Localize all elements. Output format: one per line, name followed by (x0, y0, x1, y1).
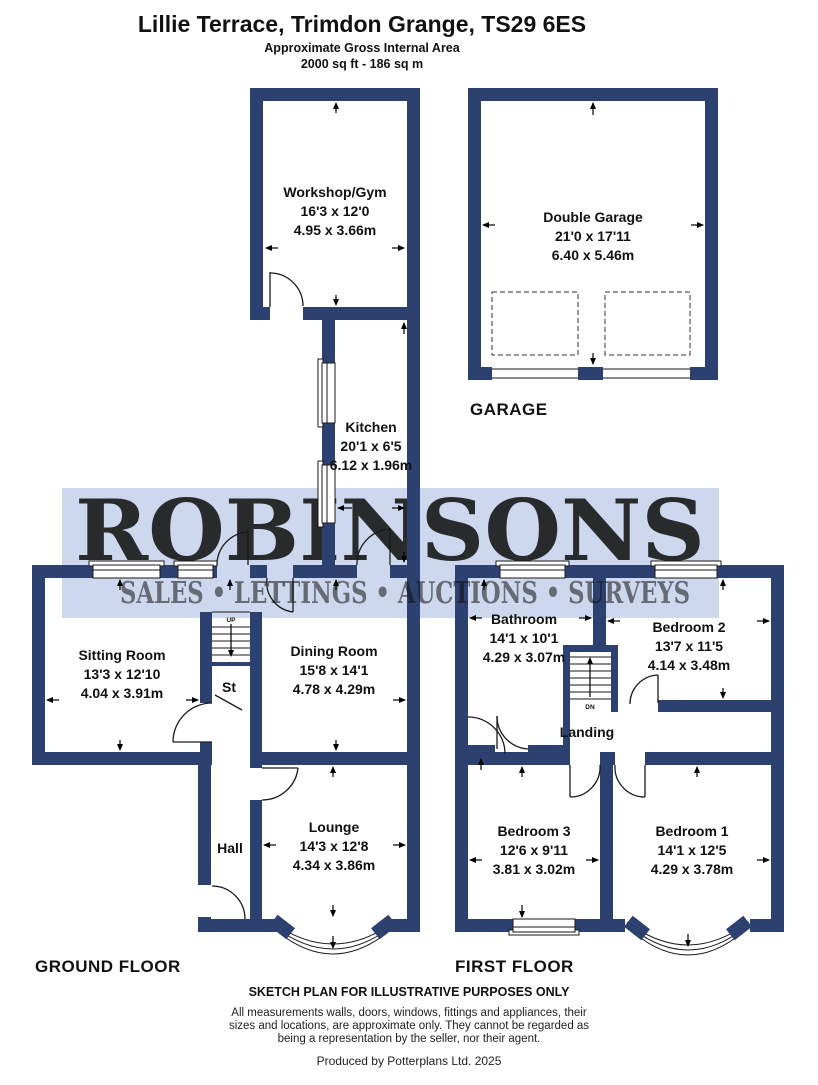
room-metric: 4.34 x 3.86m (293, 857, 376, 873)
door-arc-icon (630, 675, 658, 704)
area-label: Approximate Gross Internal Area (264, 41, 460, 55)
room-bedroom3-label: Bedroom 3 12'6 x 9'11 3.81 x 3.02m (493, 823, 576, 877)
room-st-label: St (222, 679, 236, 695)
room-metric: 3.81 x 3.02m (493, 861, 576, 877)
disclaimer-title: SKETCH PLAN FOR ILLUSTRATIVE PURPOSES ON… (249, 985, 571, 999)
room-imperial: 12'6 x 9'11 (500, 842, 568, 858)
room-name: Bedroom 3 (497, 823, 570, 839)
room-workshop-label: Workshop/Gym 16'3 x 12'0 4.95 x 3.66m (283, 184, 386, 238)
door-arc-icon (270, 272, 303, 307)
room-bedroom2-label: Bedroom 2 13'7 x 11'5 4.14 x 3.48m (648, 619, 731, 673)
room-imperial: 16'3 x 12'0 (301, 203, 370, 219)
room-metric: 4.04 x 3.91m (81, 685, 164, 701)
garage-bay-outline-icon (605, 292, 690, 355)
door-arc-icon (497, 716, 528, 749)
room-name: Bedroom 2 (652, 619, 725, 635)
room-name: Sitting Room (78, 647, 165, 663)
room-garage-label: Double Garage 21'0 x 17'11 6.40 x 5.46m (543, 209, 643, 263)
stairs-down-icon: DN (570, 657, 611, 711)
first-floor-label: FIRST FLOOR (455, 957, 574, 976)
ground-floor-label: GROUND FLOOR (35, 957, 181, 976)
stairs-up-label: UP (226, 617, 236, 624)
room-imperial: 15'8 x 14'1 (300, 662, 369, 678)
room-metric: 6.12 x 1.96m (330, 457, 413, 473)
window-icon (318, 359, 335, 427)
room-imperial: 14'1 x 10'1 (490, 630, 559, 646)
room-imperial: 20'1 x 6'5 (340, 438, 401, 454)
room-dining-label: Dining Room 15'8 x 14'1 4.78 x 4.29m (290, 643, 377, 697)
door-arc-icon (212, 886, 245, 919)
room-imperial: 14'3 x 12'8 (300, 838, 369, 854)
room-name: Workshop/Gym (283, 184, 386, 200)
windows (89, 359, 721, 935)
door-arc-icon (173, 703, 212, 742)
room-imperial: 21'0 x 17'11 (555, 228, 631, 244)
room-metric: 6.40 x 5.46m (552, 247, 635, 263)
room-landing-label: Landing (560, 724, 614, 740)
room-metric: 4.29 x 3.78m (651, 861, 734, 877)
garage-floor-label: GARAGE (470, 400, 548, 419)
room-name: Dining Room (290, 643, 377, 659)
footer: SKETCH PLAN FOR ILLUSTRATIVE PURPOSES ON… (229, 985, 589, 1068)
room-name: Bedroom 1 (655, 823, 728, 839)
room-bedroom1-label: Bedroom 1 14'1 x 12'5 4.29 x 3.78m (651, 823, 734, 877)
stairs-up-icon: UP (212, 612, 250, 656)
disclaimer-line: sizes and locations, are approximate onl… (229, 1020, 589, 1032)
floorplan-page: Lillie Terrace, Trimdon Grange, TS29 6ES… (0, 0, 818, 1080)
disclaimer-line: All measurements walls, doors, windows, … (231, 1007, 587, 1019)
disclaimer-line: being a representation by the seller, no… (278, 1033, 541, 1045)
door-arc-icon (615, 765, 645, 797)
room-name: Double Garage (543, 209, 643, 225)
garage-door-openings (492, 292, 690, 380)
page-title: Lillie Terrace, Trimdon Grange, TS29 6ES (138, 11, 586, 37)
room-bathroom-label: Bathroom 14'1 x 10'1 4.29 x 3.07m (483, 611, 566, 665)
room-name: Kitchen (345, 419, 396, 435)
room-imperial: 14'1 x 12'5 (658, 842, 727, 858)
bow-window-icon (269, 915, 397, 954)
produced-by: Produced by Potterplans Ltd. 2025 (317, 1054, 502, 1068)
room-kitchen-label: Kitchen 20'1 x 6'5 6.12 x 1.96m (330, 419, 413, 473)
garage-bay-outline-icon (492, 292, 578, 355)
room-name: Lounge (309, 819, 360, 835)
room-sitting-label: Sitting Room 13'3 x 12'10 4.04 x 3.91m (78, 647, 165, 701)
header: Lillie Terrace, Trimdon Grange, TS29 6ES… (138, 11, 586, 71)
room-metric: 4.14 x 3.48m (648, 657, 731, 673)
room-imperial: 13'7 x 11'5 (655, 638, 723, 654)
room-metric: 4.95 x 3.66m (294, 222, 377, 238)
room-metric: 4.29 x 3.07m (483, 649, 566, 665)
floorplan-svg: Lillie Terrace, Trimdon Grange, TS29 6ES… (0, 0, 818, 1080)
room-metric: 4.78 x 4.29m (293, 681, 376, 697)
door-arc-icon (570, 765, 600, 797)
room-imperial: 13'3 x 12'10 (84, 666, 161, 682)
window-icon (509, 919, 579, 935)
room-hall-label: Hall (217, 840, 243, 856)
room-name: Bathroom (491, 611, 557, 627)
watermark-tagline: SALES • LETTINGS • AUCTIONS • SURVEYS (120, 576, 690, 611)
door-leaf-icon (215, 695, 242, 710)
stairs-down-label: DN (585, 704, 595, 711)
area-value: 2000 sq ft - 186 sq m (301, 57, 423, 71)
room-lounge-label: Lounge 14'3 x 12'8 4.34 x 3.86m (293, 819, 376, 873)
door-arc-icon (262, 768, 298, 800)
